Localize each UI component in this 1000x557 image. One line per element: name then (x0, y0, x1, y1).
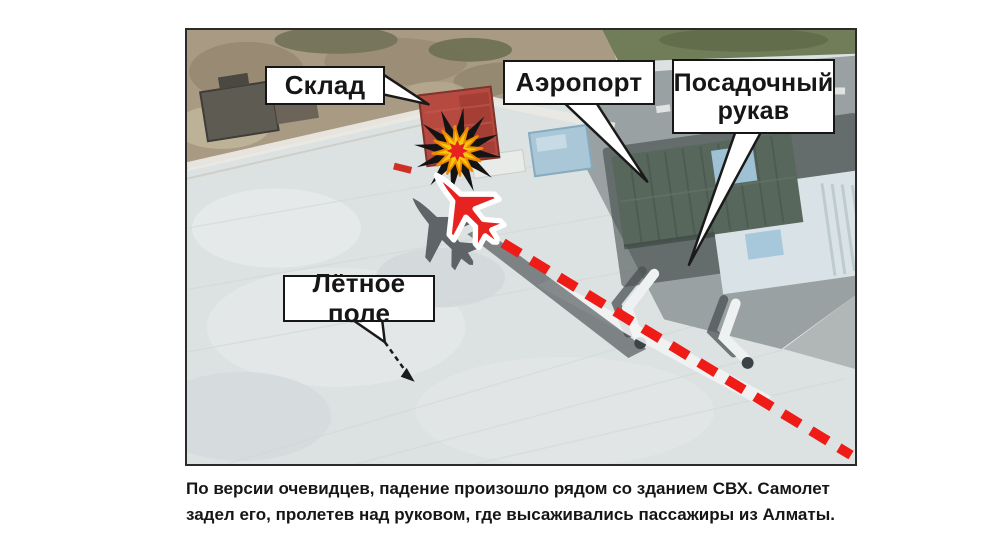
callout-airfield-label: Лётное поле (285, 269, 433, 327)
callout-warehouse-label: Склад (285, 71, 366, 100)
callout-jet-bridge: Посадочный рукав (672, 59, 835, 134)
blue-building (529, 125, 592, 176)
callout-airport: Аэропорт (503, 60, 655, 105)
callout-jet-bridge-label: Посадочный рукав (674, 69, 834, 125)
crash-site-map: Склад Аэропорт Посадочный рукав Лётное п… (185, 28, 857, 466)
callout-airfield: Лётное поле (283, 275, 435, 322)
caption-line-1: По версии очевидцев, падение произошло р… (186, 476, 876, 502)
caption-line-2: задел его, пролетев над руковом, где выс… (186, 502, 876, 528)
figure-caption: По версии очевидцев, падение произошло р… (186, 476, 876, 528)
callout-airport-label: Аэропорт (516, 68, 643, 97)
callout-warehouse: Склад (265, 66, 385, 105)
